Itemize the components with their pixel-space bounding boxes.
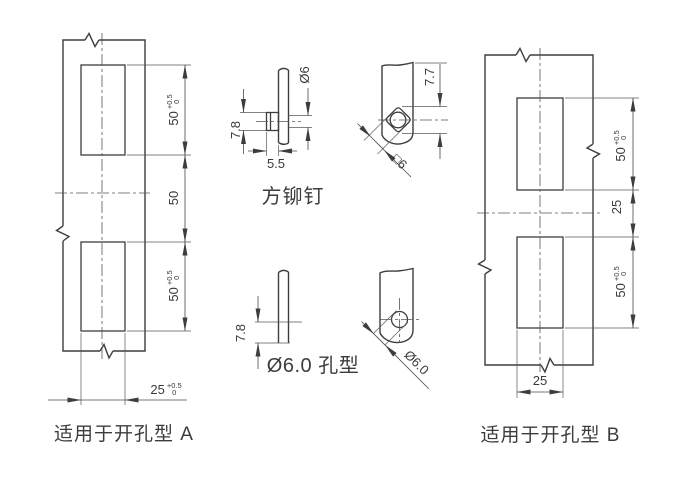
- dim-square-nw: [358, 124, 371, 137]
- rivet-dim-length-text: 5.5: [246, 154, 306, 172]
- rivet-78-extension: [240, 113, 279, 157]
- rivet-strip: [279, 68, 289, 144]
- plate-a-dim-hole2-text: 50+0.50: [164, 251, 182, 321]
- plate-b-dim-width-text: 25: [510, 371, 570, 389]
- plate-b-dim-hole2-text: 50+0.50: [611, 247, 629, 317]
- rivet-dim-height-text: 7.8: [226, 95, 244, 165]
- plate-a-slot-top: [81, 65, 125, 155]
- rivet-dim-dia-text: Ø6: [295, 40, 313, 110]
- dim-77-text: 7.7: [420, 42, 438, 112]
- plate-b-caption: 适用于开孔型 B: [473, 421, 628, 445]
- hole-dim-height-text: 7.8: [231, 298, 249, 368]
- technical-drawing-svg: [0, 0, 674, 478]
- plate-a-dim-width-text: 25+0.50: [136, 380, 196, 398]
- hole-side-strip: [279, 270, 289, 343]
- plate-a-outline: [57, 34, 146, 359]
- plate-a-slot-bottom: [81, 242, 125, 331]
- plate-a-dim-hole1-text: 50+0.50: [164, 75, 182, 145]
- dim-dia-nw: [362, 322, 374, 334]
- hole-side-caption: Ø6.0 孔型: [258, 351, 368, 375]
- plate-a-caption: 适用于开孔型 A: [49, 420, 199, 444]
- rivet-caption: 方铆钉: [253, 182, 333, 206]
- plate-b-dim-hole1-text: 50+0.50: [611, 111, 629, 181]
- plate-b-outline: [479, 49, 600, 373]
- plate-a-dim-gap-text: 50: [164, 163, 182, 233]
- technical-drawing-canvas: 50+0.50 50 50+0.50 25+0.50 适用于开孔型 A 7.8 …: [0, 0, 674, 478]
- plate-b-dim-gap-text: 25: [607, 172, 625, 242]
